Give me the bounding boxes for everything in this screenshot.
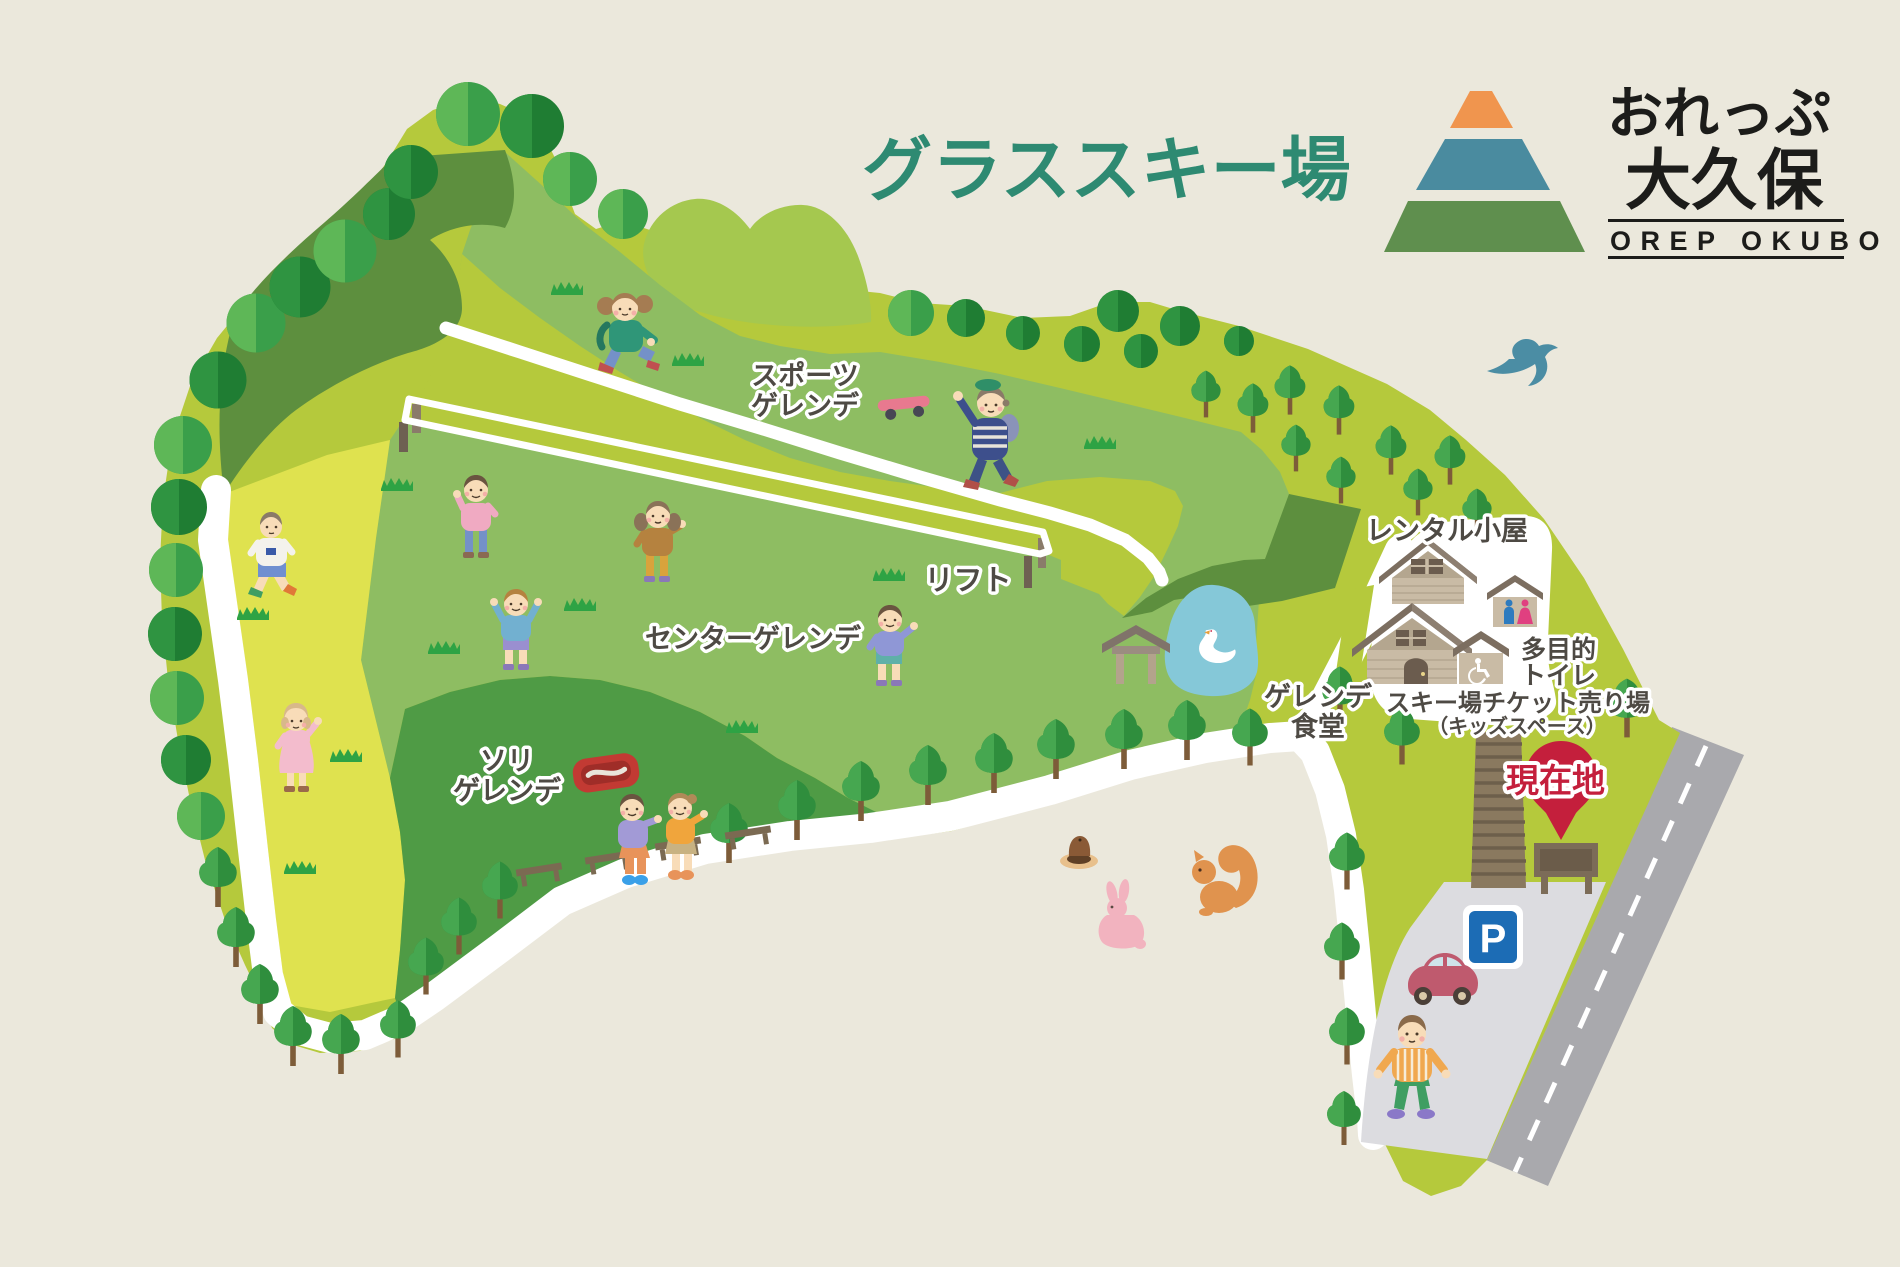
svg-text:スポーツ: スポーツ — [751, 361, 858, 391]
svg-text:センターゲレンデ: センターゲレンデ — [645, 623, 862, 654]
svg-text:大久保: 大久保 — [1625, 143, 1824, 217]
svg-text:ゲレンデ: ゲレンデ — [751, 390, 860, 421]
svg-text:（キッズスペース）: （キッズスペース） — [1428, 714, 1606, 738]
svg-text:リフト: リフト — [924, 565, 1011, 597]
svg-text:P: P — [1480, 917, 1507, 961]
svg-text:おれっぷ: おれっぷ — [1607, 82, 1831, 145]
svg-text:レンタル小屋: レンタル小屋 — [1366, 516, 1528, 546]
svg-text:多目的: 多目的 — [1521, 635, 1596, 664]
svg-text:食堂: 食堂 — [1291, 711, 1345, 742]
svg-text:ゲレンデ: ゲレンデ — [1264, 681, 1373, 712]
svg-text:スキー場チケット売り場: スキー場チケット売り場 — [1386, 690, 1650, 717]
svg-text:トイレ: トイレ — [1521, 662, 1596, 690]
svg-text:ゲレンデ: ゲレンデ — [453, 775, 562, 806]
svg-text:現在地: 現在地 — [1506, 762, 1605, 799]
svg-text:グラススキー場: グラススキー場 — [862, 131, 1351, 209]
svg-text:OREP OKUBO: OREP OKUBO — [1610, 226, 1889, 256]
svg-text:ソリ: ソリ — [480, 746, 534, 776]
